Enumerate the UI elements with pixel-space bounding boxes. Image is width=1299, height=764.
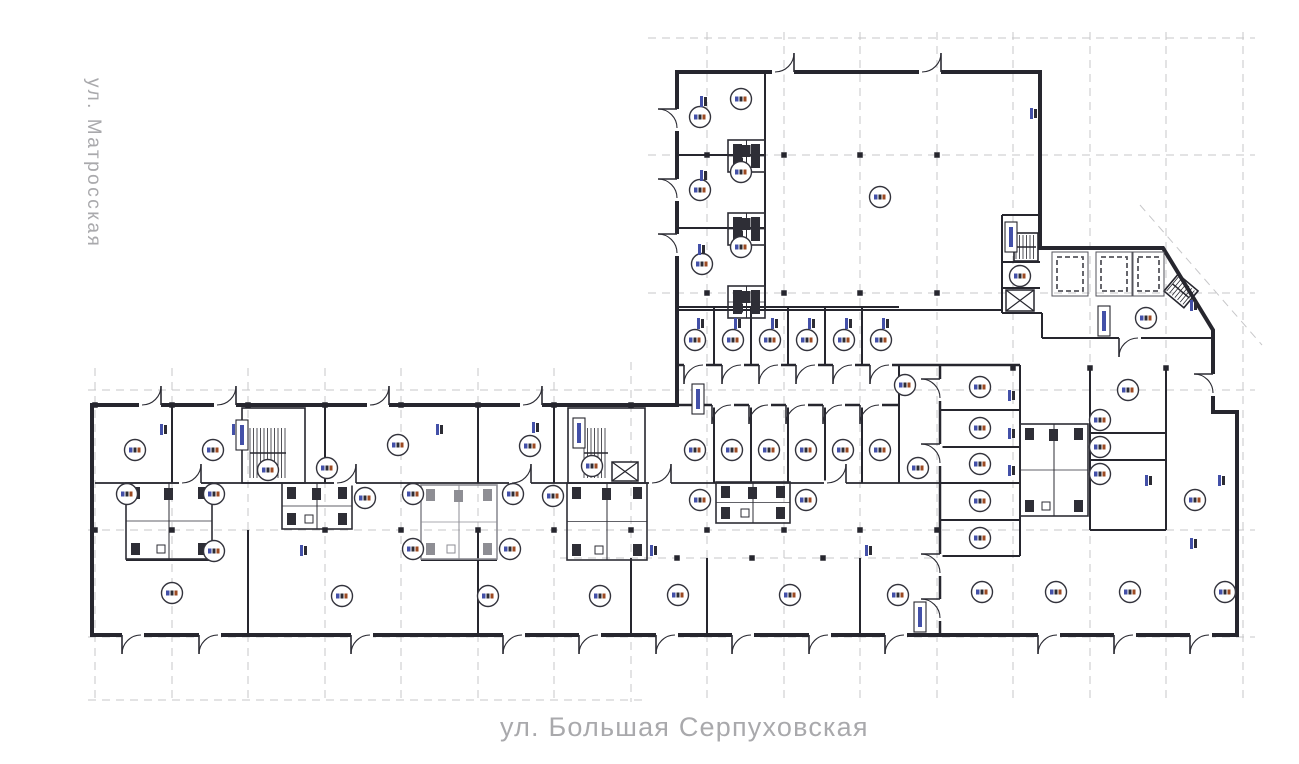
door-arc-icon	[658, 109, 677, 131]
door-arc-icon	[656, 635, 678, 654]
wc-pod-icon	[421, 485, 497, 559]
door-arc-icon	[749, 405, 771, 424]
dimension-label	[882, 318, 889, 329]
dimension-label	[845, 318, 852, 329]
door-arc-icon	[520, 386, 542, 405]
dimension-label	[1030, 108, 1037, 119]
room-number-marker	[520, 436, 541, 457]
room-number-marker	[478, 586, 499, 607]
room-number-marker	[731, 89, 752, 110]
room-number-marker	[908, 458, 929, 479]
room-number-marker	[332, 586, 353, 607]
room-number-marker	[690, 107, 711, 128]
door-arc-icon	[1114, 635, 1136, 654]
dimension-label	[734, 318, 741, 329]
room-number-marker	[731, 237, 752, 258]
room-number-marker	[668, 585, 689, 606]
dimension-label	[1008, 465, 1015, 476]
room-number-marker	[403, 539, 424, 560]
room-number-marker	[1185, 490, 1206, 511]
building-outline	[92, 72, 1237, 635]
room-number-marker	[203, 440, 224, 461]
door-arc-icon	[1038, 635, 1060, 654]
floor-plan-page: ул. Матросская ул. Большая Серпуховская	[0, 0, 1299, 764]
room-number-marker	[1090, 410, 1111, 431]
stair-cores	[242, 233, 1198, 483]
door-arc-icon	[122, 635, 144, 654]
room-number-marker	[692, 254, 713, 275]
door-arc-icon	[809, 635, 831, 654]
dimension-label	[1145, 475, 1152, 486]
dimension-label	[1218, 475, 1225, 486]
door-arc-icon	[579, 635, 601, 654]
room-number-marker	[833, 440, 854, 461]
elevation-marker	[1005, 222, 1017, 252]
door-arc-icon	[759, 365, 781, 384]
room-number-marker	[500, 539, 521, 560]
elevator-icon	[1006, 290, 1034, 311]
dimension-label	[808, 318, 815, 329]
wc-pods	[126, 140, 1088, 560]
door-arc-icon	[870, 365, 892, 384]
dimension-label	[532, 422, 539, 433]
room-number-marker	[204, 541, 225, 562]
door-arc-icon	[722, 365, 744, 384]
room-number-marker	[355, 488, 376, 509]
room-number-marker	[317, 458, 338, 479]
room-number-marker	[690, 180, 711, 201]
room-number-marker	[1046, 582, 1067, 603]
door-arc-icon	[786, 405, 808, 424]
door-arc-icon	[772, 53, 794, 72]
door-arc-icon	[684, 365, 706, 384]
shaft-boxes	[1052, 252, 1164, 296]
wc-pod-icon	[282, 483, 352, 529]
dimension-label	[1008, 428, 1015, 439]
elevation-marker	[692, 384, 704, 414]
door-arc-icon	[885, 635, 907, 654]
grid-column-squares	[92, 152, 1169, 561]
room-number-marker	[796, 440, 817, 461]
wc-pod-icon	[728, 286, 765, 318]
room-number-marker	[1118, 380, 1139, 401]
room-number-marker	[870, 440, 891, 461]
room-number-marker	[722, 440, 743, 461]
elevation-marker	[1098, 306, 1110, 336]
door-arc-icon	[503, 635, 525, 654]
wc-pod-icon	[126, 483, 212, 559]
wc-pod-icon	[716, 482, 790, 523]
room-number-marker	[970, 418, 991, 439]
room-number-marker	[125, 440, 146, 461]
room-number-marker	[731, 162, 752, 183]
room-number-marker	[204, 484, 225, 505]
stair-hatch-icon	[1014, 233, 1038, 261]
room-number-marker	[685, 440, 706, 461]
room-number-marker	[834, 330, 855, 351]
dimension-label	[1190, 538, 1197, 549]
elevation-marker	[914, 602, 926, 632]
elevation-marker	[573, 418, 585, 448]
shaft-icon	[1096, 252, 1132, 296]
room-number-marker	[723, 330, 744, 351]
shaft-icon	[1133, 252, 1164, 296]
room-number-marker	[780, 585, 801, 606]
door-arc-icon	[1190, 635, 1212, 654]
door-arc-icon	[139, 386, 161, 405]
room-number-marker	[972, 582, 993, 603]
wc-pod-icon	[1020, 424, 1088, 516]
street-label-bolshaya-serpukhovskaya: ул. Большая Серпуховская	[500, 712, 869, 743]
room-number-marker	[797, 330, 818, 351]
door-arc-icon	[199, 635, 221, 654]
door-arc-icon	[351, 635, 373, 654]
room-number-marker	[690, 490, 711, 511]
dimension-label	[436, 424, 443, 435]
door-arc-icon	[796, 365, 818, 384]
dimension-label	[700, 96, 707, 107]
dimension-label	[650, 545, 657, 556]
room-number-marker	[970, 454, 991, 475]
room-number-marker	[117, 484, 138, 505]
door-arc-icon	[732, 635, 754, 654]
door-arc-icon	[823, 405, 845, 424]
door-arc-icon	[658, 234, 677, 256]
street-label-matrosskaya: ул. Матросская	[82, 78, 104, 248]
room-number-marker	[970, 377, 991, 398]
elevator-icon	[612, 462, 638, 481]
door-arc-icon	[712, 405, 734, 424]
wc-pod-icon	[567, 483, 647, 560]
door-arc-icon	[1194, 374, 1213, 396]
room-number-marker	[970, 491, 991, 512]
dimension-label	[160, 424, 167, 435]
room-number-marker	[888, 585, 909, 606]
room-number-marker	[403, 484, 424, 505]
room-number-marker	[258, 460, 279, 481]
dimension-label	[1008, 390, 1015, 401]
room-number-marker	[543, 486, 564, 507]
dimension-label	[300, 545, 307, 556]
room-number-marker	[760, 330, 781, 351]
room-number-marker	[582, 456, 603, 477]
dimension-label	[700, 170, 707, 181]
door-arc-icon	[649, 464, 671, 483]
door-arcs	[122, 53, 1213, 654]
room-number-marker	[1215, 582, 1236, 603]
door-arc-icon	[833, 365, 855, 384]
door-arc-icon	[214, 386, 236, 405]
door-arc-icon	[509, 464, 531, 483]
room-number-marker	[871, 330, 892, 351]
dimension-labels	[160, 96, 1225, 556]
room-number-marker	[870, 187, 891, 208]
room-number-marker	[1136, 308, 1157, 329]
room-number-marker	[503, 484, 524, 505]
dimension-label	[697, 318, 704, 329]
door-arc-icon	[824, 464, 846, 483]
door-arc-icon	[658, 179, 677, 201]
room-number-marker	[1090, 464, 1111, 485]
room-number-marker	[388, 435, 409, 456]
door-arc-icon	[919, 53, 941, 72]
dimension-label	[771, 318, 778, 329]
room-number-marker	[1010, 266, 1031, 287]
door-arc-icon	[367, 386, 389, 405]
room-number-marker	[759, 440, 780, 461]
door-arc-icon	[860, 405, 882, 424]
room-number-marker	[162, 583, 183, 604]
room-number-marker	[590, 586, 611, 607]
room-number-marker	[895, 375, 916, 396]
elevation-marker	[236, 420, 248, 450]
shaft-icon	[1052, 252, 1088, 296]
room-number-marker	[1120, 582, 1141, 603]
room-number-marker	[685, 330, 706, 351]
door-arc-icon	[179, 464, 201, 483]
dimension-label	[865, 545, 872, 556]
floor-plan-drawing	[0, 0, 1299, 764]
room-number-marker	[1090, 437, 1111, 458]
room-number-marker	[796, 490, 817, 511]
room-number-marker	[970, 528, 991, 549]
door-arc-icon	[1119, 338, 1141, 357]
